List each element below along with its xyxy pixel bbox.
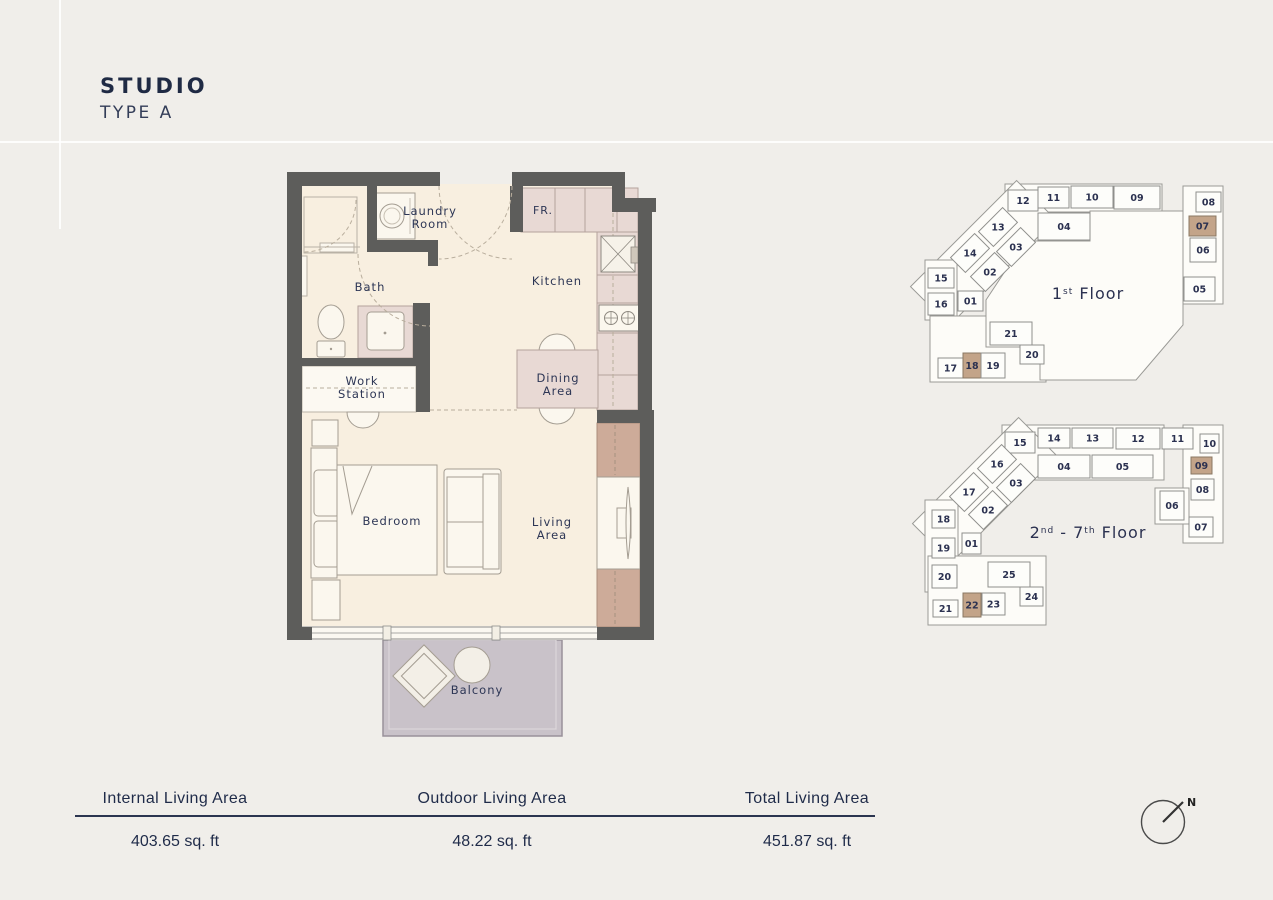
svg-text:12: 12 — [1016, 196, 1029, 207]
label-dining-1: Dining — [536, 371, 579, 385]
unit-07: 07 — [1189, 517, 1213, 537]
stat-internal-value: 403.65 sq. ft — [65, 833, 285, 851]
svg-text:20: 20 — [1025, 350, 1039, 361]
svg-text:06: 06 — [1165, 501, 1179, 512]
stat-internal-label: Internal Living Area — [65, 790, 285, 808]
svg-text:03: 03 — [1009, 243, 1022, 254]
svg-text:24: 24 — [1025, 592, 1039, 603]
svg-text:13: 13 — [1086, 434, 1099, 445]
label-kitchen: Kitchen — [532, 274, 582, 288]
svg-text:12: 12 — [1131, 434, 1144, 445]
stat-outdoor: Outdoor Living Area 48.22 sq. ft — [382, 790, 602, 851]
unit-12: 12 — [1116, 428, 1160, 449]
svg-text:08: 08 — [1196, 485, 1210, 496]
title-line1: STUDIO — [100, 74, 208, 98]
svg-text:23: 23 — [987, 600, 1000, 611]
unit-24: 24 — [1020, 587, 1043, 606]
unit-06: 06 — [1190, 238, 1216, 262]
svg-text:02: 02 — [981, 506, 994, 517]
svg-text:10: 10 — [1203, 439, 1217, 450]
unit-10: 10 — [1200, 434, 1219, 453]
toilet-icon — [317, 305, 345, 357]
svg-text:19: 19 — [937, 544, 950, 555]
unit-15: 15 — [928, 268, 954, 288]
unit-11: 11 — [1162, 428, 1193, 449]
unit-05: 05 — [1184, 277, 1215, 301]
unit-14: 14 — [1038, 428, 1070, 448]
unit-20: 20 — [1020, 345, 1044, 364]
unit-21: 21 — [933, 600, 958, 617]
stat-total-value: 451.87 sq. ft — [697, 833, 917, 851]
unit-12: 12 — [1008, 190, 1038, 211]
sofa-icon — [444, 469, 501, 574]
unit-08: 08 — [1196, 192, 1221, 212]
floor-label: 1st Floor — [1052, 284, 1124, 303]
svg-text:25: 25 — [1002, 570, 1015, 581]
label-laundry-1: Laundry — [403, 204, 457, 218]
unit-19: 19 — [981, 353, 1005, 378]
unit-18: 18 — [963, 353, 981, 378]
stat-outdoor-label: Outdoor Living Area — [382, 790, 602, 808]
unit-04: 04 — [1038, 213, 1090, 240]
keyplan-upper-floor: 1514131211100405090806071603170218190120… — [920, 420, 1230, 635]
brochure-page: STUDIO TYPE A — [0, 0, 1273, 900]
unit-01: 01 — [958, 291, 983, 311]
label-dining-2: Area — [543, 384, 573, 398]
unit-10: 10 — [1071, 186, 1113, 208]
balcony-table-icon — [454, 647, 490, 683]
unit-21: 21 — [990, 322, 1032, 345]
floorplan-studio: Laundry Room Bath FR. Kitchen Work Stati… — [285, 168, 657, 743]
unit-05: 05 — [1092, 455, 1153, 478]
svg-text:21: 21 — [939, 604, 952, 615]
svg-text:06: 06 — [1196, 246, 1210, 257]
svg-text:10: 10 — [1085, 193, 1099, 204]
svg-text:09: 09 — [1195, 461, 1208, 472]
unit-04: 04 — [1038, 455, 1090, 478]
svg-text:20: 20 — [938, 572, 952, 583]
unit-22: 22 — [963, 593, 981, 617]
unit-06: 06 — [1160, 491, 1184, 520]
svg-text:01: 01 — [964, 297, 977, 308]
label-bedroom: Bedroom — [362, 514, 421, 528]
title-line2: TYPE A — [100, 103, 208, 123]
svg-text:07: 07 — [1194, 523, 1207, 534]
label-living-1: Living — [532, 515, 572, 529]
svg-text:11: 11 — [1047, 193, 1060, 204]
label-workstation-2: Station — [338, 387, 386, 401]
svg-text:17: 17 — [944, 364, 957, 375]
svg-text:15: 15 — [1013, 438, 1026, 449]
unit-09: 09 — [1191, 457, 1212, 474]
crosshair-vertical-line — [59, 0, 61, 229]
svg-text:22: 22 — [965, 601, 978, 612]
svg-text:03: 03 — [1009, 479, 1022, 490]
svg-text:08: 08 — [1202, 198, 1216, 209]
unit-09: 09 — [1114, 186, 1160, 209]
label-workstation-1: Work — [345, 374, 378, 388]
svg-text:04: 04 — [1057, 222, 1071, 233]
stat-internal: Internal Living Area 403.65 sq. ft — [65, 790, 285, 851]
stat-total-label: Total Living Area — [697, 790, 917, 808]
unit-25: 25 — [988, 562, 1030, 587]
unit-18: 18 — [932, 510, 955, 528]
tv-wardrobe-strip — [597, 423, 640, 627]
keyplan-first-floor: 1211100904080706051303140215160121201718… — [920, 175, 1230, 390]
svg-text:18: 18 — [937, 515, 951, 526]
svg-text:15: 15 — [934, 274, 947, 285]
unit-01: 01 — [962, 533, 981, 554]
svg-text:11: 11 — [1171, 434, 1184, 445]
unit-16: 16 — [928, 293, 954, 315]
svg-text:18: 18 — [965, 361, 979, 372]
unit-15: 15 — [1005, 432, 1035, 453]
svg-text:05: 05 — [1193, 285, 1206, 296]
svg-text:07: 07 — [1196, 222, 1209, 233]
svg-text:21: 21 — [1004, 329, 1017, 340]
crosshair-horizontal-line — [0, 141, 1273, 143]
svg-text:16: 16 — [934, 300, 948, 311]
window-strip — [302, 626, 597, 640]
page-title: STUDIO TYPE A — [100, 74, 208, 123]
unit-08: 08 — [1191, 479, 1214, 500]
unit-11: 11 — [1038, 187, 1069, 208]
compass: N — [1132, 786, 1212, 866]
floor-label: 2nd - 7th Floor — [1030, 523, 1147, 542]
svg-text:13: 13 — [991, 223, 1004, 234]
unit-07: 07 — [1189, 216, 1216, 236]
unit-20: 20 — [932, 565, 957, 588]
stat-outdoor-value: 48.22 sq. ft — [382, 833, 602, 851]
svg-text:04: 04 — [1057, 462, 1071, 473]
unit-23: 23 — [982, 593, 1005, 615]
stats-divider-line — [75, 815, 875, 817]
label-fridge: FR. — [533, 204, 553, 217]
compass-north-label: N — [1187, 796, 1196, 809]
svg-text:17: 17 — [962, 488, 975, 499]
svg-text:16: 16 — [990, 460, 1004, 471]
stat-total: Total Living Area 451.87 sq. ft — [697, 790, 917, 851]
svg-text:09: 09 — [1130, 193, 1143, 204]
svg-text:01: 01 — [965, 539, 978, 550]
label-balcony: Balcony — [451, 683, 504, 697]
svg-text:14: 14 — [1047, 434, 1061, 445]
svg-text:19: 19 — [986, 361, 999, 372]
unit-19: 19 — [932, 538, 955, 558]
svg-text:02: 02 — [983, 268, 996, 279]
svg-text:14: 14 — [963, 249, 977, 260]
vanity-sink-icon — [358, 306, 413, 358]
kitchen-sink-icon — [601, 236, 638, 272]
cooktop-icon — [599, 305, 639, 331]
svg-text:05: 05 — [1116, 462, 1129, 473]
unit-13: 13 — [1072, 428, 1113, 448]
unit-17: 17 — [938, 358, 963, 378]
label-bath: Bath — [355, 280, 386, 294]
compass-needle-icon — [1163, 802, 1183, 822]
label-living-2: Area — [537, 528, 567, 542]
label-laundry-2: Room — [412, 217, 449, 231]
